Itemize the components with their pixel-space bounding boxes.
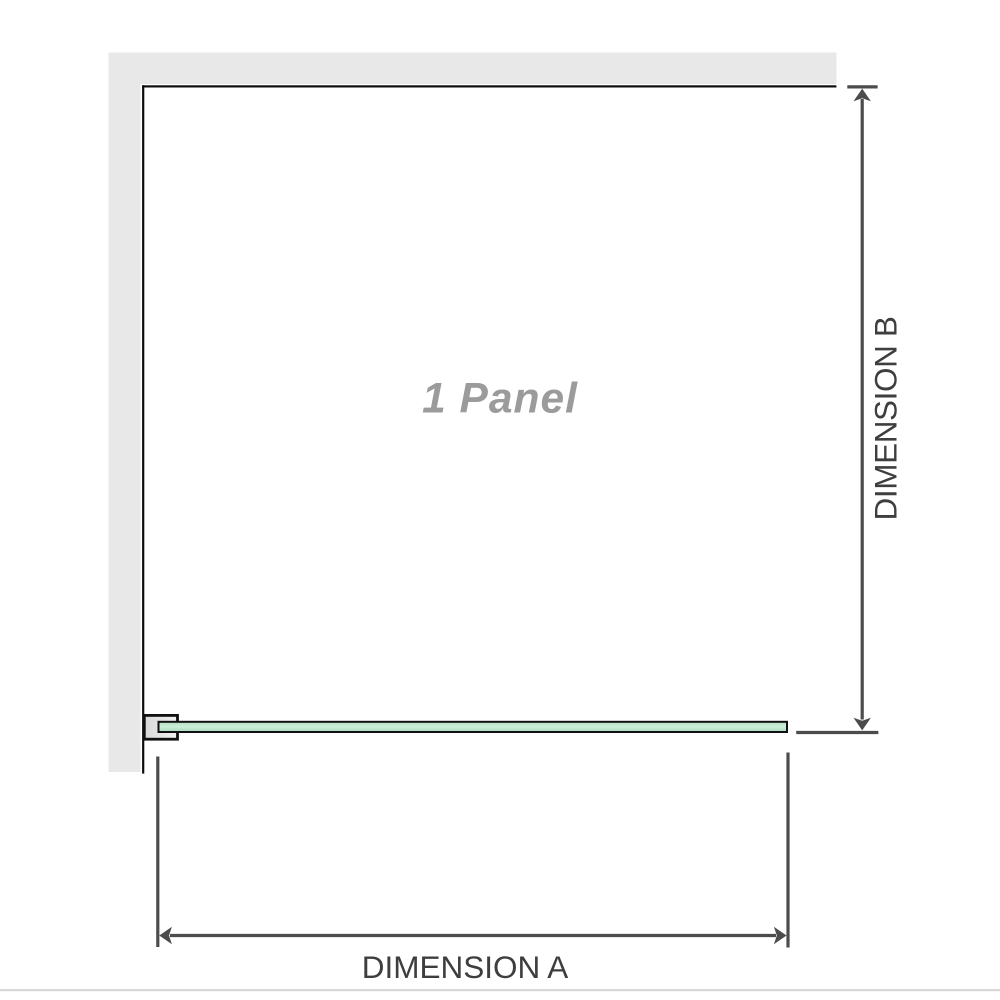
svg-text:DIMENSION A: DIMENSION A <box>362 949 569 985</box>
svg-text:DIMENSION B: DIMENSION B <box>868 317 904 521</box>
svg-text:1 Panel: 1 Panel <box>422 375 578 422</box>
